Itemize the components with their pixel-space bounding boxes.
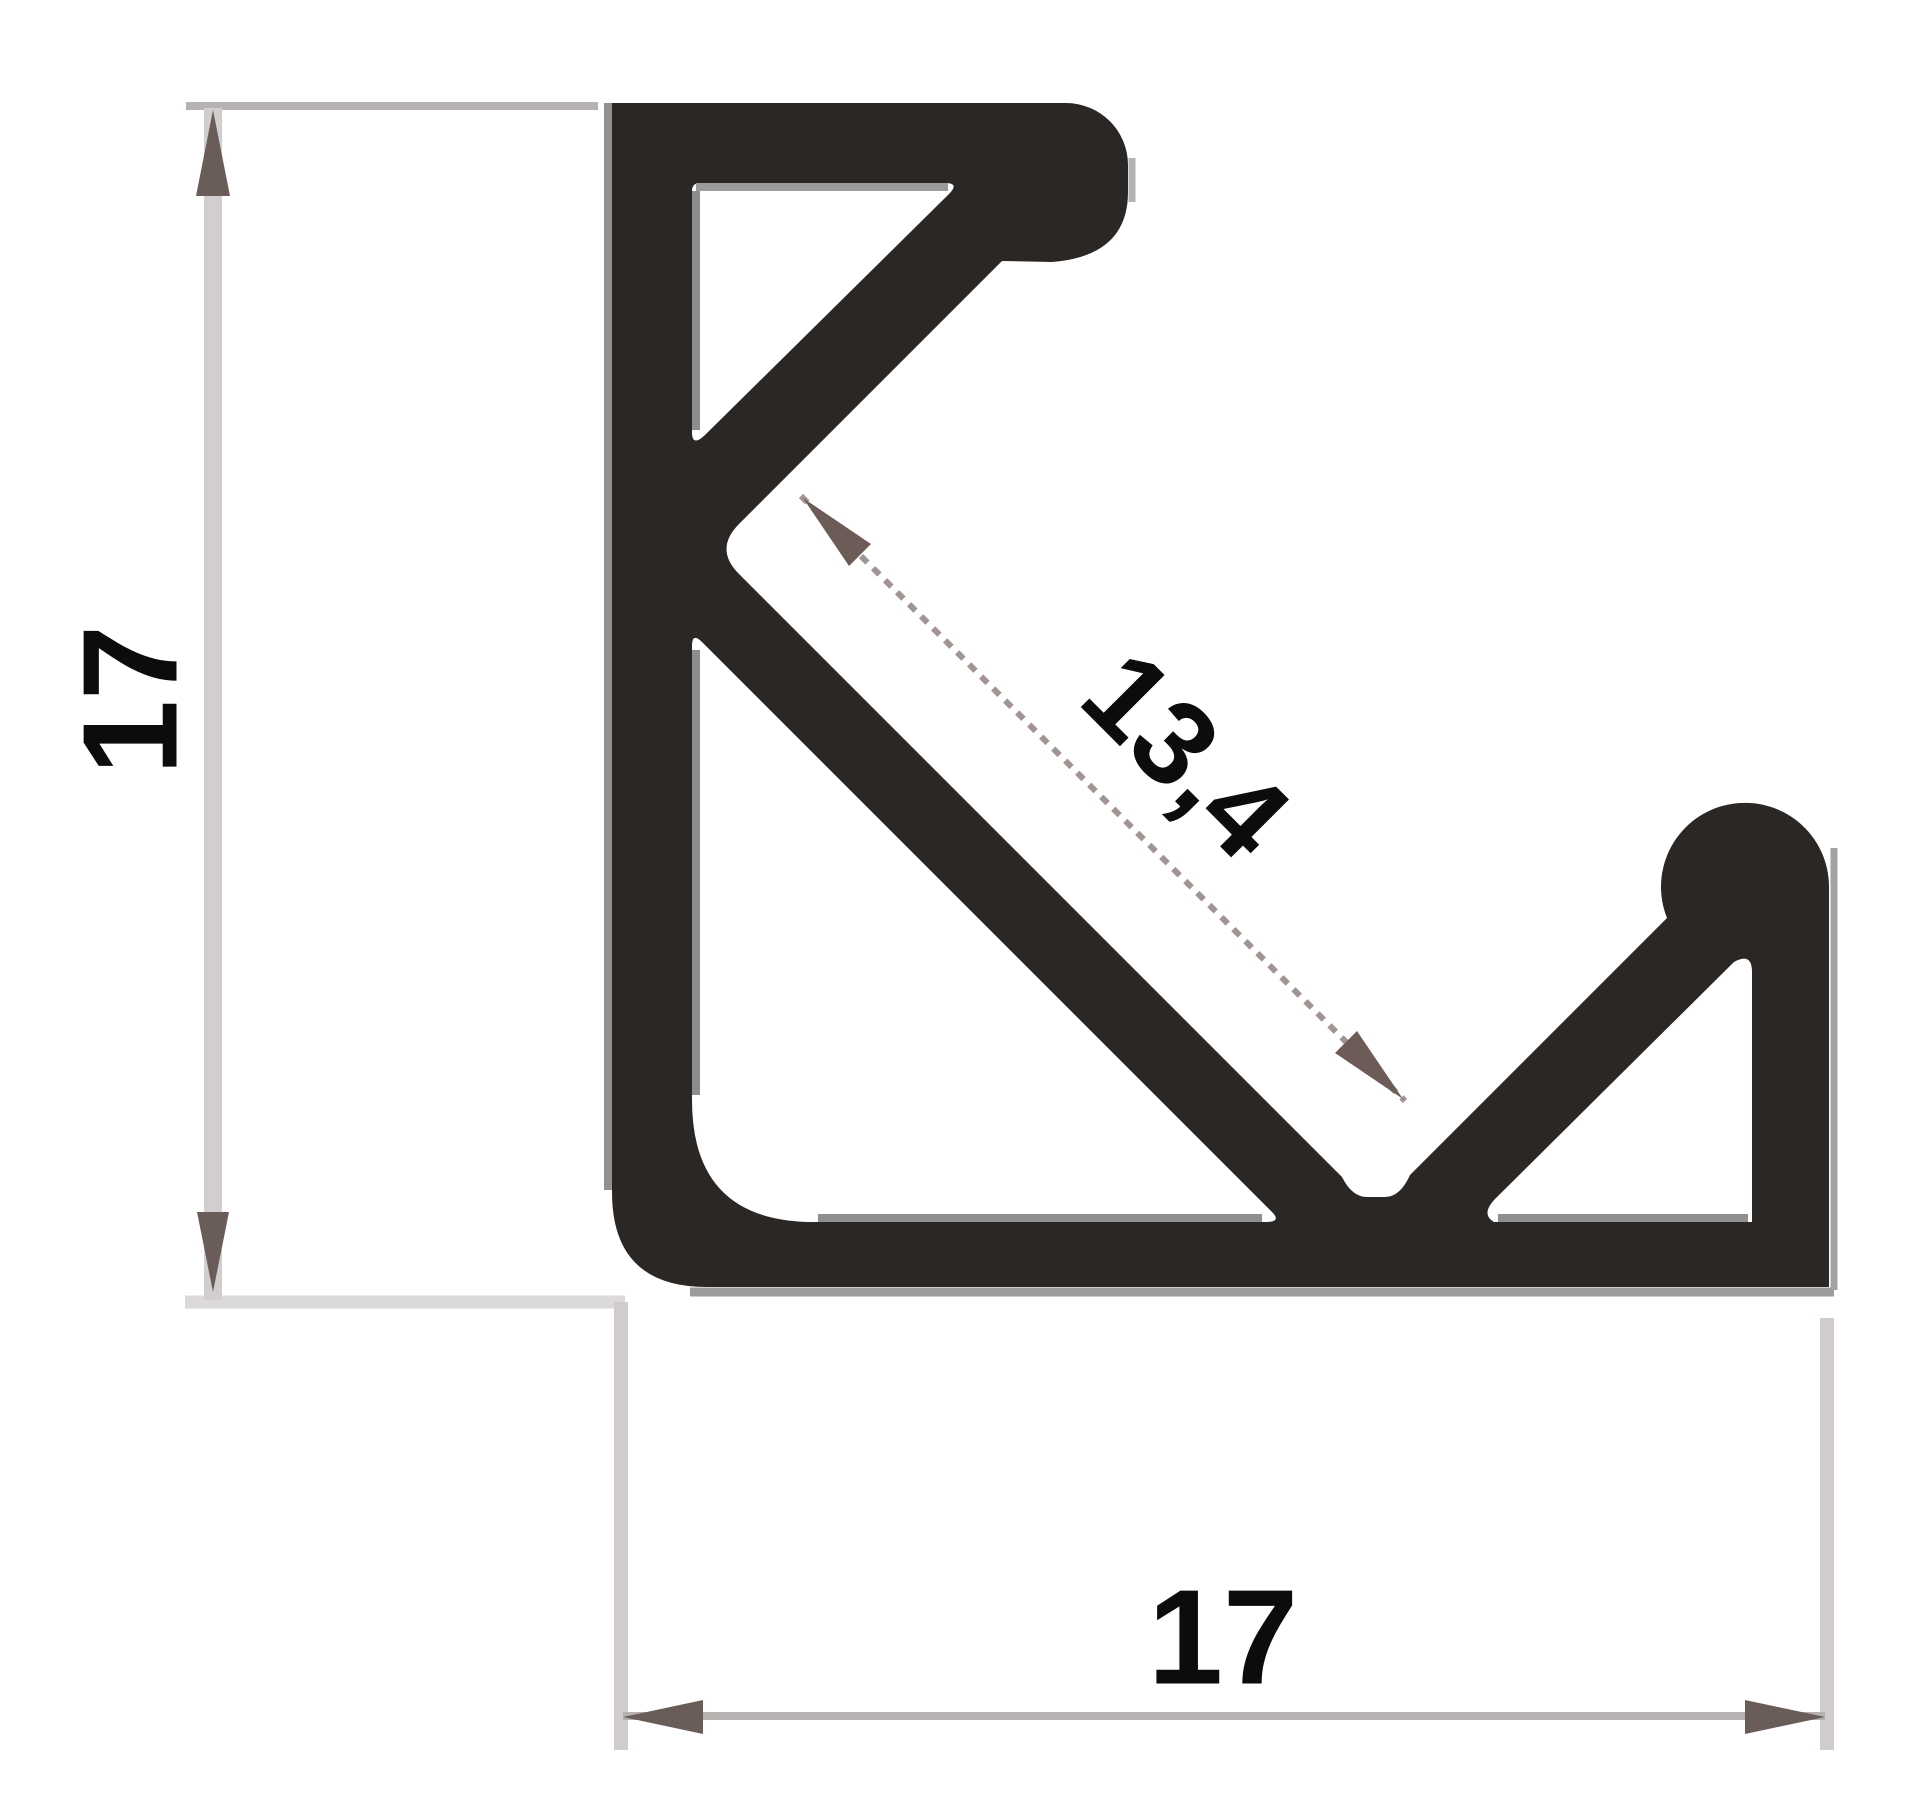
svg-text:13,4: 13,4 [1057, 626, 1315, 884]
svg-text:17: 17 [1148, 1562, 1298, 1713]
svg-text:17: 17 [55, 625, 206, 775]
